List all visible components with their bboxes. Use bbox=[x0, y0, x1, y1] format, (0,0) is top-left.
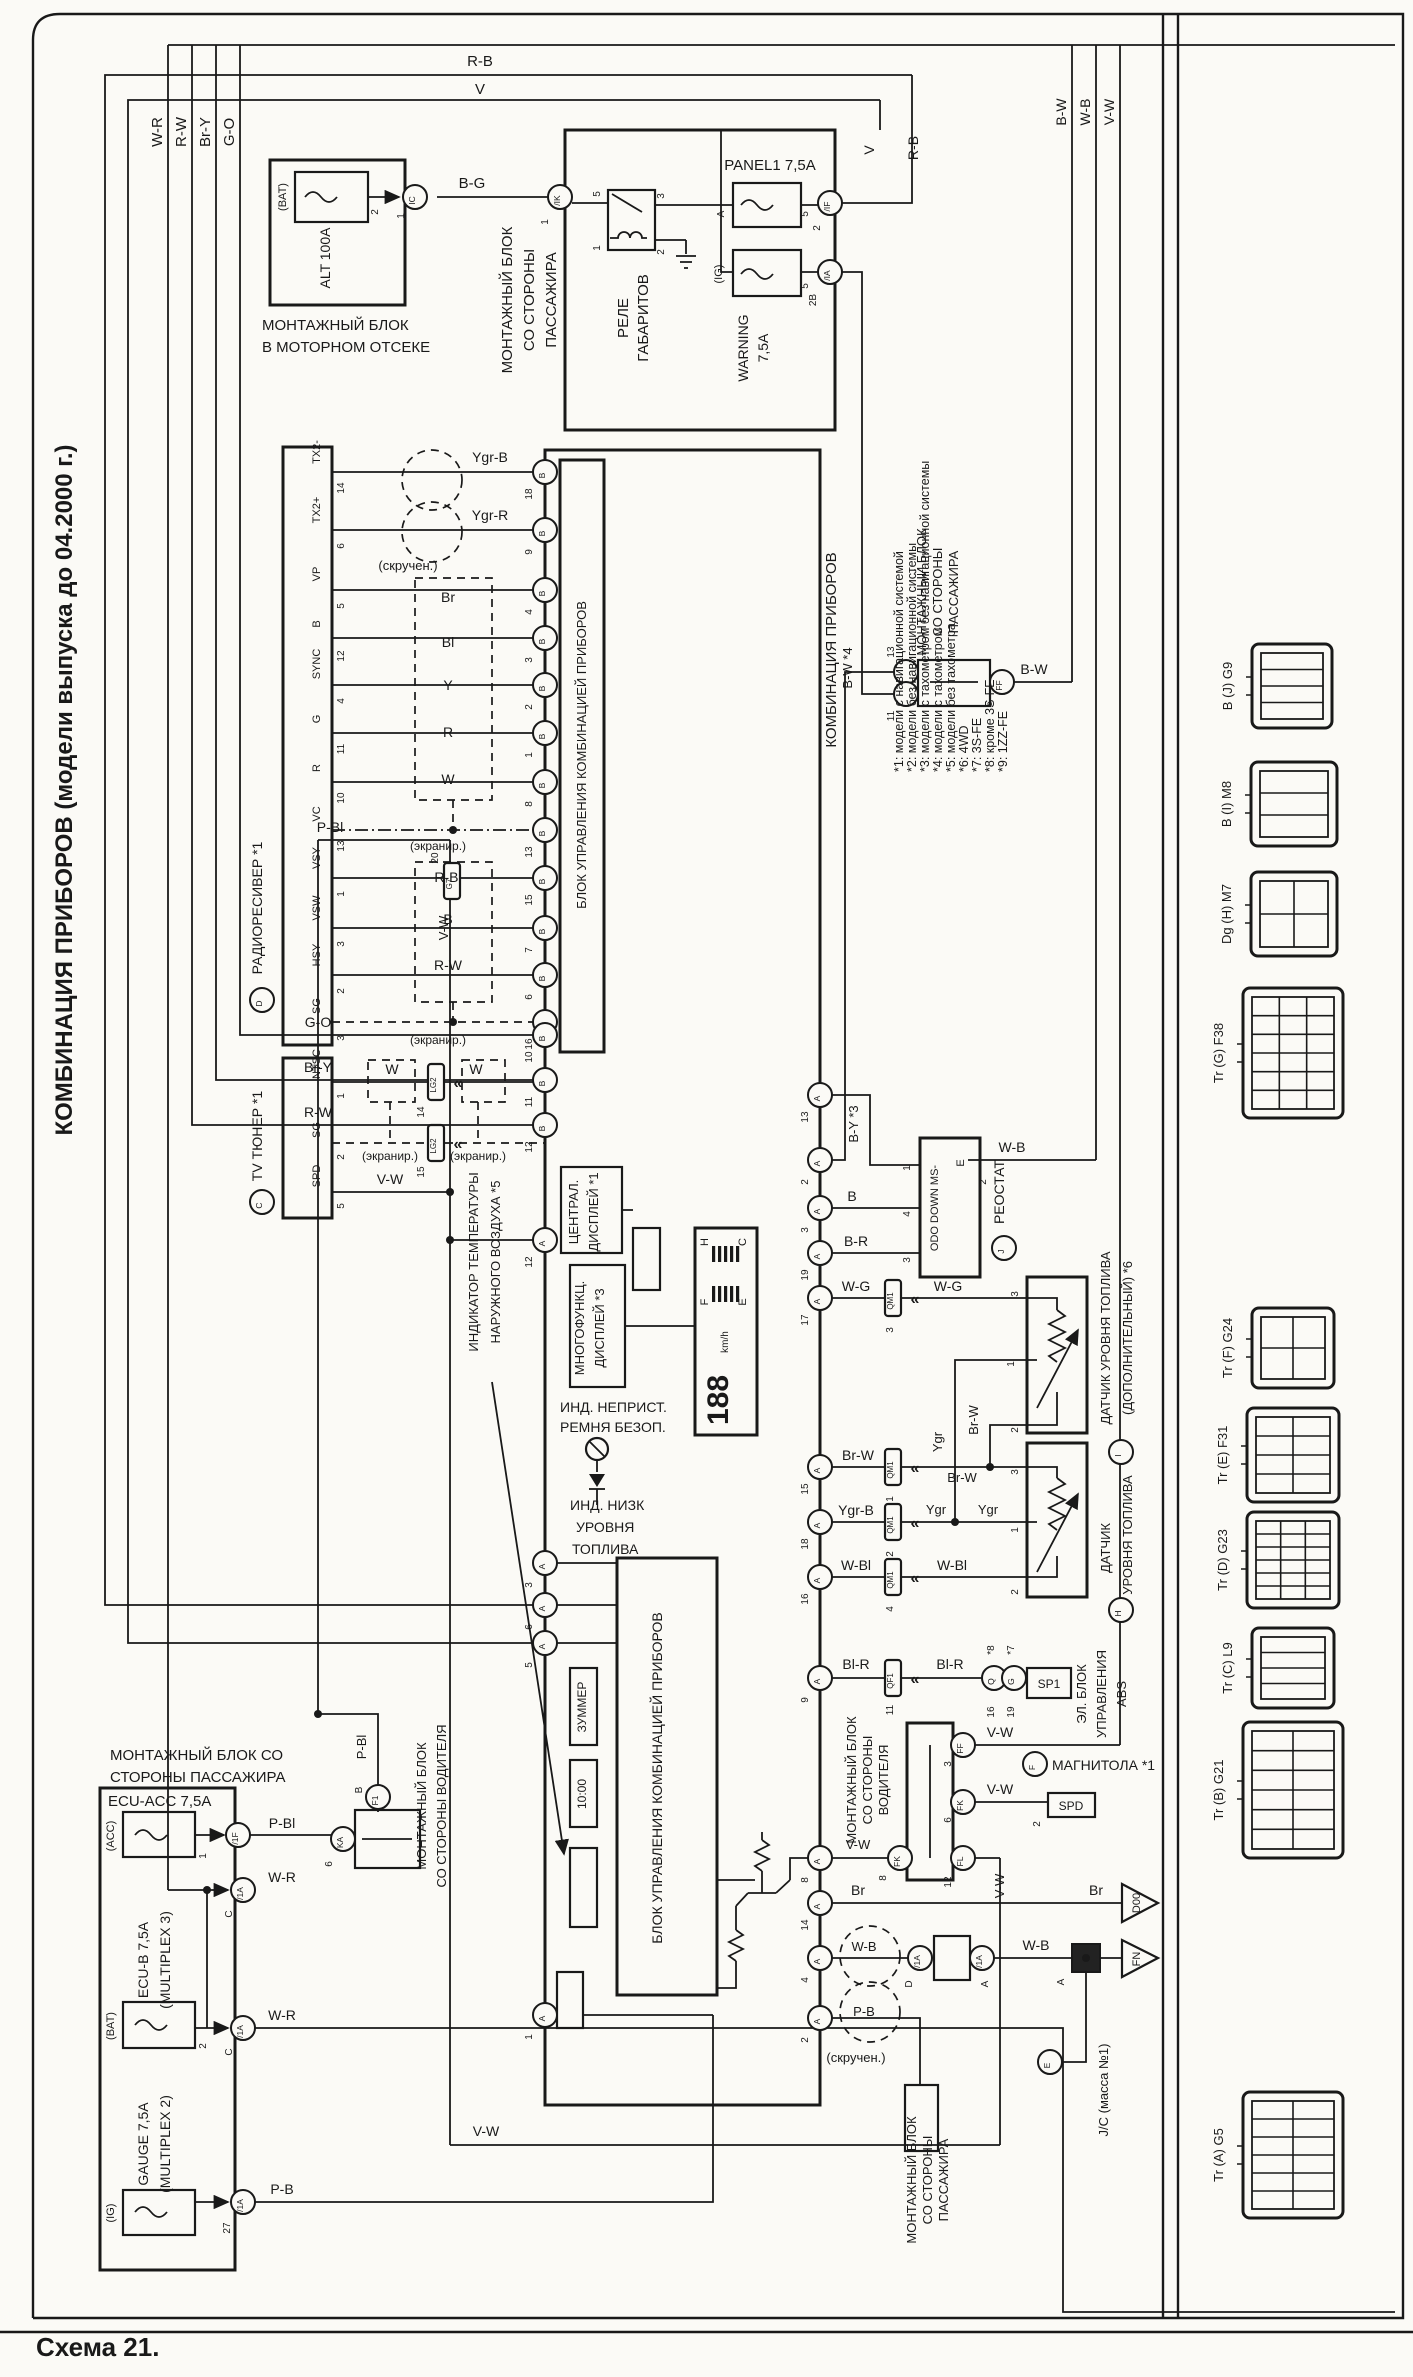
conn-b-label: B bbox=[537, 590, 547, 596]
label-bl-r: Bl-R bbox=[936, 1656, 963, 1672]
label-1: 1 bbox=[1006, 1361, 1017, 1367]
label-3: 3 bbox=[336, 941, 347, 947]
label-10: 10 bbox=[524, 1051, 535, 1063]
label-13: 13 bbox=[886, 646, 897, 658]
wire-wr-top: W-R bbox=[149, 117, 166, 147]
conn-a-label: A bbox=[537, 2015, 547, 2021]
wire-go-mid: G-O bbox=[305, 1014, 332, 1030]
diagram-title: КОМБИНАЦИЯ ПРИБОРОВ (модели выпуска до 0… bbox=[51, 444, 78, 1135]
seatbelt-ind-2: РЕМНЯ БЕЗОП. bbox=[560, 1419, 666, 1435]
ground-fn: FN bbox=[1131, 1952, 1143, 1967]
lcd-bar-temp-3 bbox=[730, 1246, 733, 1262]
label-13: 13 bbox=[524, 846, 535, 858]
conn-b: B bbox=[533, 1068, 557, 1092]
pass-bot-label-2: СО СТОРОНЫ bbox=[920, 2136, 935, 2225]
label-w-g: W-G bbox=[934, 1278, 963, 1294]
radio-pin-vsw: VSW bbox=[311, 895, 323, 921]
fuse-ecuacc-label: ECU-ACC 7,5A bbox=[108, 1793, 211, 1810]
label-15: 15 bbox=[524, 894, 535, 906]
label-acc: (ACC) bbox=[105, 1821, 117, 1852]
main-control-label: БЛОК УПРАВЛЕНИЯ КОМБИНАЦИЕЙ ПРИБОРОВ bbox=[648, 1612, 665, 1943]
label-6: 6 bbox=[943, 1817, 954, 1823]
conn-b: B bbox=[533, 518, 557, 542]
radio-pin-r: R bbox=[311, 764, 323, 772]
wire-rw-top: R-W bbox=[173, 116, 190, 147]
label-w-b: W-B bbox=[1023, 1937, 1050, 1953]
wire-bry-mid: Br-Y bbox=[304, 1059, 333, 1075]
conn-a-label: A bbox=[812, 1678, 822, 1684]
radio-pin-sync: SYNC bbox=[311, 649, 323, 680]
diagram-caption: Схема 21. bbox=[36, 2332, 159, 2362]
conn-a-label: A bbox=[812, 1253, 822, 1259]
label-c: C bbox=[224, 1910, 235, 1917]
fuel-level-sensors bbox=[832, 1277, 1087, 1597]
label-5: 5 bbox=[336, 603, 347, 609]
circle-j-label: J bbox=[996, 1249, 1006, 1253]
conn-b-label: B bbox=[537, 685, 547, 691]
fuel-sensor2-label-1: ДАТЧИК УРОВНЯ ТОПЛИВА bbox=[1098, 1251, 1113, 1424]
conn-a-label: A bbox=[812, 1958, 822, 1964]
label-4: 4 bbox=[524, 609, 535, 615]
fuse-panel1-label: PANEL1 7,5A bbox=[724, 157, 815, 174]
twisted-label-1: (скручен.) bbox=[378, 558, 437, 573]
conn-a: A bbox=[808, 1083, 832, 1107]
label-9: 9 bbox=[524, 549, 535, 555]
connector-m7-label: Dg (H) M7 bbox=[1219, 884, 1234, 944]
connector-l9: Tr (C) L9 bbox=[1220, 1628, 1334, 1708]
label-bat: (BAT) bbox=[105, 2012, 117, 2040]
lowfuel-ind-1: ИНД. НИЗК bbox=[570, 1497, 645, 1513]
pass-mid-label-3: ПАССАЖИРА bbox=[946, 550, 961, 633]
conn-b-label: B bbox=[537, 1035, 547, 1041]
lcd-speed: 188 bbox=[702, 1375, 735, 1425]
label-w-bl: W-Bl bbox=[937, 1557, 967, 1573]
label-3: 3 bbox=[336, 1035, 347, 1041]
conn-f1-label: F1 bbox=[370, 1795, 380, 1805]
pass-top-label-1: МОНТАЖНЫЙ БЛОК bbox=[498, 226, 516, 373]
pass-bot-label-1: МОНТАЖНЫЙ БЛОК bbox=[904, 2116, 919, 2244]
conn-fk2: FK bbox=[888, 1846, 912, 1870]
label-c: C bbox=[224, 2048, 235, 2055]
conn-qm1-ygrb-arrow-icon: « bbox=[911, 1515, 920, 1532]
conn-qm1-brw-label: QM1 bbox=[886, 1461, 895, 1479]
pass-top-label-3: ПАССАЖИРА bbox=[543, 252, 560, 347]
fuse-warn-label-1: WARNING bbox=[735, 314, 751, 381]
conn-if-pin: 2 bbox=[812, 225, 823, 231]
label-b-r: B-R bbox=[844, 1233, 868, 1249]
conn-fl: FL bbox=[951, 1846, 975, 1870]
label-2: 2 bbox=[336, 988, 347, 994]
label-ygr: Ygr bbox=[926, 1502, 947, 1517]
wire-vw-right: V-W bbox=[1101, 98, 1117, 125]
circle-e: E bbox=[1038, 2050, 1062, 2074]
fuse-ecub-label-1: ECU-B 7,5A bbox=[135, 1921, 151, 1998]
label-br: Br bbox=[851, 1882, 865, 1898]
label-6: 6 bbox=[524, 994, 535, 1000]
conn-1a-label: /1A bbox=[235, 2025, 245, 2038]
abs-sp1: SP1 bbox=[1038, 1677, 1061, 1691]
pass-bl-label-2: СТОРОНЫ ПАССАЖИРА bbox=[110, 1769, 286, 1786]
conn-a-label: A bbox=[812, 1577, 822, 1583]
label-19: 19 bbox=[800, 1269, 811, 1281]
fuel-sensor1-label-1: ДАТЧИК bbox=[1098, 1523, 1113, 1573]
label-w-bl: W-Bl bbox=[841, 1557, 871, 1573]
conn-fk1-label: FK bbox=[955, 1800, 965, 1811]
note-5: *5: модели без тахометра bbox=[944, 623, 958, 772]
conn-a: A bbox=[533, 1631, 557, 1655]
label-br-w: Br-W bbox=[842, 1447, 875, 1463]
label-18: 18 bbox=[800, 1538, 811, 1550]
conn-a-label: A bbox=[812, 2018, 822, 2024]
conn-ia-pin: 2B bbox=[808, 294, 819, 307]
conn-a: A bbox=[533, 1228, 557, 1252]
label-16: 16 bbox=[524, 1038, 535, 1050]
label-b-w-4: B-W *4 bbox=[840, 647, 855, 688]
conn-qm1-wbl-label: QM1 bbox=[886, 1571, 895, 1589]
shield-label-4: (экранир.) bbox=[450, 1149, 506, 1163]
label-11: 11 bbox=[886, 710, 897, 721]
tuner-pin-spd: SPD bbox=[311, 1165, 323, 1188]
label-a: A bbox=[1056, 1978, 1067, 1985]
conn-1a-a: /1A bbox=[970, 1946, 994, 1970]
conn-fl-label: FL bbox=[955, 1856, 965, 1866]
abs-label-2: УПРАВЛЕНИЯ bbox=[1094, 1650, 1109, 1738]
label-15: 15 bbox=[416, 1166, 427, 1178]
abs-label-1: ЭЛ. БЛОК bbox=[1074, 1664, 1089, 1724]
circle-h: H bbox=[1109, 1598, 1133, 1622]
label-2: 2 bbox=[800, 1179, 811, 1185]
label-bl-r: Bl-R bbox=[842, 1656, 869, 1672]
label-4: 4 bbox=[885, 1606, 896, 1612]
multi-display-1: МНОГОФУНКЦ. bbox=[572, 1281, 587, 1376]
conn-b: B bbox=[533, 866, 557, 890]
label-12: 12 bbox=[336, 650, 347, 662]
conn-a: A bbox=[533, 1551, 557, 1575]
fuse-ecub-label-2: (MULTIPLEX 3) bbox=[157, 1911, 173, 2009]
circle-c: C bbox=[250, 1190, 274, 1214]
conn-ia-label: /IA bbox=[822, 270, 832, 281]
conn-ic-pin: 1 bbox=[396, 213, 407, 219]
conn-lg2-w-arrow-icon: « bbox=[454, 1075, 463, 1092]
conn-q-label: Q bbox=[986, 1678, 996, 1685]
label-w: W bbox=[469, 1061, 483, 1077]
label-br-w: Br-W bbox=[947, 1470, 977, 1485]
wire-wb-right: W-B bbox=[1077, 99, 1093, 126]
label-6: 6 bbox=[336, 543, 347, 549]
note-1: *1: модели с навигационной системой bbox=[892, 551, 906, 772]
label-w-b: W-B bbox=[851, 1939, 876, 1954]
relay-pin5: 5 bbox=[592, 191, 603, 197]
driver-block-label-3: ВОДИТЕЛЯ bbox=[876, 1745, 891, 1816]
wire-v-right: V bbox=[861, 145, 877, 155]
conn-qm1-wg-label: QM1 bbox=[886, 1292, 895, 1310]
connector-m8: B (I) M8 bbox=[1219, 762, 1337, 846]
lcd-kmh: km/h bbox=[720, 1331, 731, 1353]
conn-qm1-brw-arrow-icon: « bbox=[911, 1460, 920, 1477]
fuel-sensor1-label-2: УРОВНЯ ТОПЛИВА bbox=[1120, 1475, 1135, 1595]
fuse-gauge-label-2: (MULTIPLEX 2) bbox=[157, 2095, 173, 2193]
conn-b-label: B bbox=[537, 928, 547, 934]
label-bl: Bl bbox=[442, 634, 454, 650]
relay-pin3: 3 bbox=[656, 193, 667, 199]
circle-c-label: C bbox=[254, 1202, 264, 1208]
conn-a: A bbox=[808, 1510, 832, 1534]
label-v-w: V-W bbox=[992, 1873, 1007, 1898]
conn-a-label: A bbox=[812, 1903, 822, 1909]
label-r-w: R-W bbox=[434, 957, 463, 973]
fuse-warn-ig: (IG) bbox=[713, 265, 725, 284]
label-a: A bbox=[980, 1980, 991, 1987]
label-v-w: V-W bbox=[473, 2123, 500, 2139]
label-2: 2 bbox=[978, 1179, 989, 1185]
relay-label-1: РЕЛЕ bbox=[615, 298, 632, 338]
conn-qf1-arrow-icon: « bbox=[911, 1671, 920, 1688]
wire-rw-mid: R-W bbox=[304, 1104, 333, 1120]
label-8: *8 bbox=[986, 1645, 997, 1655]
conn-b-label: B bbox=[537, 733, 547, 739]
passenger-junction-block-bottom-left bbox=[100, 1788, 1395, 2312]
conn-qm1-wbl-arrow-icon: « bbox=[911, 1570, 920, 1587]
label-4: 4 bbox=[902, 1211, 913, 1217]
lcd-bar-temp-2 bbox=[724, 1246, 727, 1262]
fuse-panel1-a: A bbox=[716, 210, 727, 217]
conn-a-label: A bbox=[537, 1643, 547, 1649]
label-h: H bbox=[699, 1238, 711, 1246]
conn-fk2-label: FK bbox=[892, 1856, 902, 1867]
outtemp-label-1: ИНДИКАТОР ТЕМПЕРАТУРЫ bbox=[466, 1172, 481, 1351]
label-w-r: W-R bbox=[268, 2007, 296, 2023]
note-8: *8: кроме 3S-FE bbox=[983, 679, 997, 772]
wire-rb-top: R-B bbox=[467, 53, 493, 70]
label-p-b: P-B bbox=[270, 2181, 293, 2197]
conn-1a: /1A bbox=[231, 1878, 255, 1902]
circle-e-label: E bbox=[1042, 2062, 1052, 2068]
circle-f-label: F bbox=[1027, 1765, 1037, 1770]
conn-a: A bbox=[808, 1565, 832, 1589]
conn-a: A bbox=[808, 2006, 832, 2030]
note-4: *4: модели с тахометром bbox=[931, 628, 945, 772]
conn-b-label: B bbox=[537, 1080, 547, 1086]
conn-b-label: B bbox=[537, 830, 547, 836]
conn-b: B bbox=[533, 770, 557, 794]
note-9: *9: 1ZZ-FE bbox=[996, 711, 1010, 772]
central-display-2: ДИСПЛЕЙ *1 bbox=[586, 1172, 601, 1251]
connector-g24: Tr (F) G24 bbox=[1220, 1308, 1334, 1388]
label-3: 3 bbox=[902, 1257, 913, 1263]
driver-block-label-1: МОНТАЖНЫЙ БЛОК bbox=[844, 1716, 859, 1844]
label-w-r: W-R bbox=[268, 1869, 296, 1885]
label-10: 10 bbox=[336, 792, 347, 804]
passenger-junction-block-top bbox=[565, 130, 894, 694]
note-7: *7: 3S-FE bbox=[970, 718, 984, 772]
wire-ygrr: Ygr-R bbox=[472, 507, 509, 523]
label-v-w: V-W bbox=[436, 915, 451, 940]
conn-1f-label: /1F bbox=[230, 1832, 240, 1844]
conn-a: A bbox=[808, 1846, 832, 1870]
conn-b: B bbox=[533, 963, 557, 987]
label-w: W bbox=[441, 771, 455, 787]
radio-pin-hsy: HSY bbox=[311, 943, 323, 966]
label-2: 2 bbox=[1010, 1589, 1021, 1595]
conn-ka: KA bbox=[331, 1827, 355, 1851]
label-1: 1 bbox=[524, 2034, 535, 2040]
radio-pin-b: B bbox=[311, 620, 323, 627]
label-3: 3 bbox=[524, 1582, 535, 1588]
lcd-bar-fuel-0 bbox=[712, 1286, 715, 1302]
label-14: 14 bbox=[416, 1106, 427, 1118]
note-6: *6: 4WD bbox=[957, 725, 971, 772]
label-e: E bbox=[955, 1159, 967, 1166]
label-1: 1 bbox=[1010, 1527, 1021, 1533]
rheostat-label: РЕОСТАТ bbox=[991, 1160, 1007, 1225]
label-11: 11 bbox=[336, 743, 347, 754]
rheostat-block bbox=[832, 1095, 1096, 1277]
central-display-1: ЦЕНТРАЛ. bbox=[566, 1180, 581, 1245]
conn-fk1: FK bbox=[951, 1790, 975, 1814]
radio-pin-vp: VP bbox=[311, 567, 323, 582]
label-e: E bbox=[737, 1298, 749, 1305]
label-v-w: V-W bbox=[987, 1781, 1014, 1797]
driver-bl-label-2: СО СТОРОНЫ ВОДИТЕЛЯ bbox=[434, 1724, 449, 1887]
conn-b: B bbox=[533, 1113, 557, 1137]
conn-qm1-wg-arrow-icon: « bbox=[911, 1291, 920, 1308]
connector-f31: Tr (E) F31 bbox=[1215, 1408, 1339, 1502]
wire-bw-right: B-W bbox=[1053, 98, 1069, 126]
label-9: 9 bbox=[800, 1697, 811, 1703]
label-15: 15 bbox=[800, 1483, 811, 1495]
radio-unit-label: МАГНИТОЛА *1 bbox=[1052, 1757, 1155, 1773]
conn-b: B bbox=[533, 578, 557, 602]
circle-h-label: H bbox=[1113, 1610, 1123, 1616]
label-2: 2 bbox=[336, 1154, 347, 1160]
label-ig: (IG) bbox=[105, 2204, 117, 2223]
conn-b: B bbox=[533, 673, 557, 697]
conn-b-label: B bbox=[537, 975, 547, 981]
label-3: 3 bbox=[885, 1327, 896, 1333]
label-b: B bbox=[354, 1786, 365, 1793]
label-v-w: V-W bbox=[987, 1724, 1014, 1740]
label-12: 12 bbox=[524, 1141, 535, 1153]
conn-ik-label: /IK bbox=[552, 195, 562, 206]
conn-b-label: B bbox=[537, 530, 547, 536]
conn-b: B bbox=[533, 460, 557, 484]
fuse-panel1-5: 5 bbox=[800, 211, 811, 217]
pass-mid-label-2: СО СТОРОНЫ bbox=[930, 548, 945, 637]
label-b: B bbox=[847, 1188, 856, 1204]
conn-ik-pin: 1 bbox=[540, 219, 551, 225]
conn-ff2-label: FF bbox=[955, 1743, 965, 1753]
conn-b: B bbox=[533, 721, 557, 745]
label-2: 2 bbox=[1032, 1821, 1043, 1827]
radio-pin-g: G bbox=[311, 715, 323, 724]
shield-label-1: (экранир.) bbox=[410, 839, 466, 853]
connector-f38: Tr (G) F38 bbox=[1211, 988, 1343, 1118]
label-8: 8 bbox=[800, 1877, 811, 1883]
shield-label-3: (экранир.) bbox=[362, 1149, 418, 1163]
label-19: 19 bbox=[1006, 1706, 1017, 1718]
conn-ik: /IK bbox=[548, 185, 572, 209]
conn-f1: F1 bbox=[366, 1785, 390, 1809]
fuse-gauge-label-1: GAUGE 7,5A bbox=[135, 2102, 151, 2186]
tuner-label: TV ТЮНЕР *1 bbox=[249, 1091, 265, 1182]
label-1: 1 bbox=[198, 1853, 209, 1859]
abs-section bbox=[832, 1668, 1071, 1698]
wire-bg: B-G bbox=[459, 175, 486, 192]
label-p-b: P-B bbox=[853, 2004, 875, 2019]
connector-g21: Tr (B) G21 bbox=[1211, 1722, 1343, 1858]
label-3: 3 bbox=[943, 1761, 954, 1767]
connector-g5-label: Tr (A) G5 bbox=[1211, 2128, 1226, 2182]
label-13: 13 bbox=[336, 840, 347, 852]
conn-b-label: B bbox=[537, 472, 547, 478]
label-3: 3 bbox=[1010, 1291, 1021, 1297]
conn-1a-a-label: /1A bbox=[974, 1955, 984, 1968]
label-8: 8 bbox=[878, 1875, 889, 1881]
engine-block-label-2: В МОТОРНОМ ОТСЕКЕ bbox=[262, 339, 430, 356]
pass-top-label-2: СО СТОРОНЫ bbox=[521, 249, 538, 351]
fuse-warn-label-2: 7,5A bbox=[755, 333, 771, 362]
label-v-w: V-W bbox=[377, 1171, 404, 1187]
radio-pin-tx2p: TX2+ bbox=[311, 497, 323, 524]
label-3: 3 bbox=[1010, 1469, 1021, 1475]
relay-pin1: 1 bbox=[592, 245, 603, 251]
connector-f38-label: Tr (G) F38 bbox=[1211, 1023, 1226, 1083]
label-y: Y bbox=[443, 677, 453, 693]
lowfuel-ind-3: ТОПЛИВА bbox=[572, 1541, 639, 1557]
label-b-w: B-W bbox=[1020, 661, 1048, 677]
outtemp-arrow bbox=[492, 1382, 564, 1854]
conn-b-label: B bbox=[537, 878, 547, 884]
conn-b: B bbox=[533, 1023, 557, 1047]
label-1: 1 bbox=[336, 1093, 347, 1099]
lcd-bar-temp-4 bbox=[736, 1246, 739, 1262]
label-ygr: Ygr bbox=[978, 1502, 999, 1517]
conn-b-label: B bbox=[537, 638, 547, 644]
conn-a: A bbox=[808, 1148, 832, 1172]
conn-g: G bbox=[1002, 1666, 1026, 1690]
label-18: 18 bbox=[524, 488, 535, 500]
relay-label-2: ГАБАРИТОВ bbox=[635, 274, 652, 362]
label-27: 27 bbox=[222, 2222, 233, 2234]
label-17: 17 bbox=[800, 1314, 811, 1326]
label-5: 5 bbox=[984, 701, 995, 707]
conn-a-label: A bbox=[537, 1240, 547, 1246]
lcd-bar-temp-1 bbox=[718, 1246, 721, 1262]
jc-label: J/C (масса №1) bbox=[1096, 2044, 1111, 2137]
conn-a-label: A bbox=[812, 1467, 822, 1473]
conn-ia: /IA bbox=[818, 260, 842, 284]
label-r: R bbox=[443, 724, 453, 740]
circle-j: J bbox=[992, 1236, 1016, 1260]
conn-ic: IC bbox=[403, 185, 427, 209]
wiring-diagram: QM1«QM1«QM1«QM1«QF1«LG2«LG2«G7B (J) G9B … bbox=[0, 0, 1413, 2377]
conn-1a-label: /1A bbox=[235, 1887, 245, 1900]
conn-b: B bbox=[533, 916, 557, 940]
label-5: 5 bbox=[336, 1203, 347, 1209]
radio-pin-sg: SG bbox=[311, 998, 323, 1014]
connector-m8-label: B (I) M8 bbox=[1219, 781, 1234, 827]
label-w: W bbox=[385, 1061, 399, 1077]
label-c: C bbox=[737, 1238, 749, 1246]
page-frame bbox=[0, 14, 1413, 2332]
conn-1f: /1F bbox=[226, 1823, 250, 1847]
outtemp-label-2: НАРУЖНОГО ВОЗДУХА *5 bbox=[488, 1181, 503, 1344]
conn-a: A bbox=[808, 1455, 832, 1479]
label-1: 1 bbox=[885, 1496, 896, 1502]
conn-a-label: A bbox=[812, 1522, 822, 1528]
label-16: 16 bbox=[986, 1706, 997, 1718]
conn-a-label: A bbox=[812, 1208, 822, 1214]
